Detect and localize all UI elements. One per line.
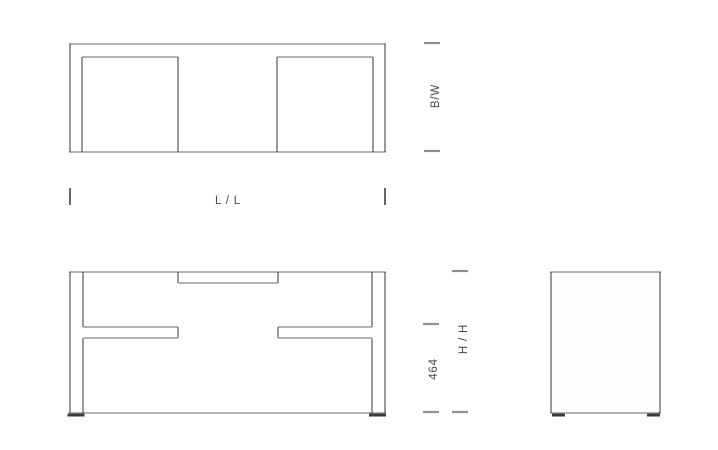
technical-drawing: B/W L / L bbox=[0, 0, 718, 450]
plan-left-base bbox=[82, 57, 178, 152]
front-left-slot bbox=[83, 327, 178, 338]
front-left-foot bbox=[68, 414, 85, 417]
front-top-stretcher bbox=[178, 272, 278, 283]
dimension-underframe-height: 464 bbox=[423, 324, 440, 412]
front-right-slot bbox=[278, 327, 372, 338]
dim-label-hh: H / H bbox=[458, 324, 470, 354]
front-view bbox=[68, 272, 387, 417]
side-view bbox=[550, 272, 661, 417]
plan-outer-rectangle bbox=[69, 44, 386, 152]
plan-view bbox=[69, 44, 386, 152]
dimension-length: L / L bbox=[70, 188, 385, 207]
dimension-height: H / H bbox=[452, 271, 470, 412]
dim-label-ll: L / L bbox=[215, 195, 241, 207]
furniture-dimension-diagram: B/W L / L bbox=[0, 0, 718, 450]
side-left-foot bbox=[552, 414, 565, 417]
front-right-foot bbox=[369, 414, 386, 417]
dim-label-bw: B/W bbox=[430, 84, 442, 108]
plan-right-base bbox=[277, 57, 373, 152]
dimension-width-depth: B/W bbox=[424, 43, 442, 151]
side-right-foot bbox=[647, 414, 660, 417]
side-panel-face bbox=[552, 273, 660, 413]
dim-label-464: 464 bbox=[428, 358, 440, 380]
front-outer-rectangle bbox=[69, 272, 386, 413]
